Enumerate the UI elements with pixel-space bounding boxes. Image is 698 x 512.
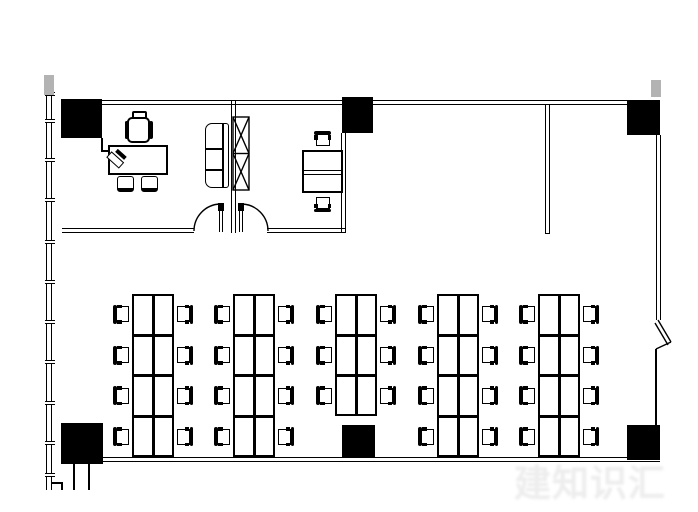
workstation-cluster-3-row-divider-2 — [337, 374, 375, 377]
workstation-cluster-5-chair-right-2-part — [596, 346, 600, 365]
workstation-cluster-2-chair-left-3-part — [218, 402, 223, 406]
workstation-cluster-1-chair-right-4-part — [185, 427, 190, 431]
workstation-cluster-4-chair-right-4-part — [495, 427, 499, 446]
workstation-cluster-4-chair-right-4 — [481, 427, 498, 446]
curtain-mullion-tick-11 — [45, 473, 55, 477]
workstation-cluster-1-chair-left-4 — [113, 427, 130, 446]
workstation-cluster-5-chair-right-4 — [582, 427, 599, 446]
workstation-cluster-1-chair-left-1-part — [117, 320, 122, 324]
office2-south-wall — [267, 228, 345, 233]
workstation-cluster-2-chair-left-1 — [214, 305, 231, 324]
right-wall-notch-3 — [656, 342, 671, 349]
workstation-cluster-1-chair-left-3 — [113, 386, 130, 405]
workstation-cluster-4-chair-right-3-part — [495, 386, 499, 405]
workstation-cluster-5-chair-right-1-part — [591, 320, 596, 324]
workstation-cluster-4-chair-left-2-part — [422, 346, 427, 350]
wall-stub-left-a — [73, 464, 75, 490]
workstation-cluster-4-chair-right-1 — [481, 305, 498, 324]
workstation-cluster-1-chair-right-4 — [176, 427, 193, 446]
workstation-cluster-5-row-divider-3 — [540, 415, 578, 418]
workstation-cluster-3-chair-right-2-part — [388, 346, 393, 350]
workstation-cluster-5-chair-left-2-part — [523, 361, 528, 365]
curtain-mullion-tick-4 — [45, 198, 55, 202]
workstation-cluster-5-chair-left-1-part — [523, 320, 528, 324]
workstation-cluster-5-chair-left-1-part — [523, 305, 528, 309]
workstation-cluster-2-chair-right-1-part — [286, 305, 291, 309]
workstation-cluster-4-row-divider-3 — [439, 415, 477, 418]
workstation-cluster-4-chair-left-4-part — [422, 427, 427, 431]
screen-partition-wall — [545, 105, 550, 234]
door-swing-arc-office2 — [242, 204, 268, 231]
workstation-cluster-4-chair-right-3-part — [490, 386, 495, 390]
curtain-mullion-tick-6 — [45, 280, 55, 284]
guest-chair-1 — [117, 176, 134, 192]
workstation-cluster-4-chair-right-4-part — [490, 427, 495, 431]
workstation-cluster-1-chair-right-1-part — [190, 305, 194, 324]
workstation-cluster-1-chair-right-1-part — [185, 305, 190, 309]
workstation-cluster-2-chair-right-1-part — [286, 320, 291, 324]
workstation-cluster-1-chair-right-2 — [176, 346, 193, 365]
workstation-cluster-1-row-divider-1 — [134, 334, 172, 337]
workstation-cluster-4-chair-right-1-part — [490, 320, 495, 324]
curtain-mullion-tick-9 — [45, 401, 55, 405]
workstation-cluster-2-chair-right-4-part — [291, 427, 295, 446]
workstation-cluster-2-chair-right-2-part — [286, 346, 291, 350]
workstation-cluster-2-chair-right-3 — [277, 386, 294, 405]
workstation-cluster-1-chair-right-3-part — [185, 386, 190, 390]
workstation-cluster-2-chair-left-1-part — [218, 305, 223, 309]
workstation-cluster-5-chair-left-3-part — [523, 386, 528, 390]
workstation-cluster-5-chair-right-3-part — [591, 386, 596, 390]
workstation-cluster-5-chair-left-2-part — [523, 346, 528, 350]
workstation-cluster-3-chair-right-2 — [379, 346, 396, 365]
workstation-cluster-5-chair-left-4-part — [523, 427, 528, 431]
workstation-cluster-2-chair-right-2-part — [291, 346, 295, 365]
workstation-cluster-3-chair-right-1 — [379, 305, 396, 324]
workstation-cluster-1-row-divider-3 — [134, 415, 172, 418]
office1-sofa-back-line — [222, 124, 224, 187]
workstation-cluster-5-chair-right-4-part — [591, 427, 596, 431]
workstation-cluster-2-chair-left-3-part — [218, 386, 223, 390]
workstation-cluster-5-chair-right-2 — [582, 346, 599, 365]
executive-chair-body — [127, 117, 150, 143]
workstation-cluster-2-chair-right-4 — [277, 427, 294, 446]
workstation-cluster-5-chair-right-3-part — [591, 402, 596, 406]
workstation-cluster-2-row-divider-3 — [235, 415, 273, 418]
workstation-cluster-2-chair-right-1-part — [291, 305, 295, 324]
workstation-cluster-4-chair-left-2-part — [422, 361, 427, 365]
door-swing-arc-office1 — [194, 204, 220, 231]
workstation-cluster-4-chair-right-3 — [481, 386, 498, 405]
workstation-cluster-2-chair-left-3 — [214, 386, 231, 405]
workstation-cluster-4-chair-right-2-part — [490, 361, 495, 365]
exterior-wall-right-upper — [656, 135, 661, 320]
curtain-mullion-tick-5 — [45, 240, 55, 244]
workstation-cluster-1-chair-left-1 — [113, 305, 130, 324]
workstation-cluster-2-chair-right-4-part — [286, 427, 291, 431]
workstation-cluster-3-chair-right-3-part — [393, 386, 397, 405]
workstation-cluster-1 — [132, 294, 174, 457]
office1-sofa-cushion-divider-2 — [206, 169, 222, 171]
workstation-cluster-1-chair-left-2-part — [117, 346, 122, 350]
workstation-cluster-2-chair-right-2 — [277, 346, 294, 365]
workstation-cluster-1-chair-right-2-part — [185, 361, 190, 365]
workstation-cluster-4-chair-left-4-part — [422, 443, 427, 447]
workstation-cluster-4-chair-left-3 — [418, 386, 435, 405]
workstation-cluster-5-chair-left-4 — [519, 427, 536, 446]
workstation-cluster-3-center-divider — [355, 296, 358, 414]
workstation-cluster-2-chair-left-2-part — [218, 361, 223, 365]
workstation-cluster-2-chair-right-2-part — [286, 361, 291, 365]
workstation-cluster-2-chair-left-4-part — [218, 443, 223, 447]
office1-sofa — [205, 123, 229, 188]
workstation-cluster-4-chair-left-1 — [418, 305, 435, 324]
workstation-cluster-3-chair-left-2-part — [320, 346, 325, 350]
workstation-cluster-2-chair-right-3-part — [291, 386, 295, 405]
workstation-cluster-5-chair-right-3-part — [596, 386, 600, 405]
workstation-cluster-1-chair-right-1 — [176, 305, 193, 324]
workstation-cluster-4-chair-right-4-part — [490, 443, 495, 447]
curtain-wall-step-v — [61, 482, 63, 490]
workstation-cluster-2-chair-left-2-part — [218, 346, 223, 350]
workstation-cluster-1-chair-left-2-part — [117, 361, 122, 365]
workstation-cluster-1-chair-right-4-part — [185, 443, 190, 447]
workstation-cluster-1-chair-right-3 — [176, 386, 193, 405]
workstation-cluster-4-row-divider-2 — [439, 374, 477, 377]
workstation-cluster-5-chair-left-3 — [519, 386, 536, 405]
workstation-cluster-3-chair-right-1-part — [388, 320, 393, 324]
workstation-cluster-1-chair-right-4-part — [190, 427, 194, 446]
column-top-right — [627, 101, 660, 135]
workstation-cluster-1-chair-right-1-part — [185, 320, 190, 324]
workstation-cluster-3-chair-right-3-part — [388, 402, 393, 406]
workstation-cluster-4-row-divider-1 — [439, 334, 477, 337]
workstation-cluster-3-chair-right-3 — [379, 386, 396, 405]
mullion-cap-top-right — [651, 80, 661, 97]
workstation-cluster-5-chair-right-1 — [582, 305, 599, 324]
workstation-cluster-4-chair-right-1-part — [490, 305, 495, 309]
workstation-cluster-5-chair-right-1-part — [596, 305, 600, 324]
workstation-cluster-2-row-divider-2 — [235, 374, 273, 377]
workstation-cluster-2-chair-left-2 — [214, 346, 231, 365]
workstation-cluster-3-chair-left-1 — [316, 305, 333, 324]
office2-desk — [302, 150, 343, 193]
workstation-cluster-5-chair-right-3 — [582, 386, 599, 405]
workstation-cluster-4-chair-left-2 — [418, 346, 435, 365]
workstation-cluster-4-chair-left-1-part — [422, 305, 427, 309]
workstation-cluster-3-chair-left-2 — [316, 346, 333, 365]
curtain-mullion-tick-10 — [45, 441, 55, 445]
workstation-cluster-3-chair-right-2-part — [388, 361, 393, 365]
workstation-cluster-2 — [233, 294, 275, 457]
workstation-cluster-1-chair-left-4-part — [117, 443, 122, 447]
workstation-cluster-4-chair-right-1-part — [495, 305, 499, 324]
column-bottom-right — [627, 425, 660, 460]
workstation-cluster-5-chair-left-3-part — [523, 402, 528, 406]
workstation-cluster-1-chair-left-4-part — [117, 427, 122, 431]
workstation-cluster-1-chair-left-2 — [113, 346, 130, 365]
workstation-cluster-3-chair-left-3-part — [320, 386, 325, 390]
curtain-mullion-tick-8 — [45, 360, 55, 364]
workstation-cluster-5-chair-right-4-part — [591, 443, 596, 447]
workstation-cluster-3-row-divider-1 — [337, 334, 375, 337]
workstation-cluster-4-chair-right-2-part — [495, 346, 499, 365]
guest-chair-2 — [141, 176, 158, 192]
exterior-wall-right-lower — [655, 349, 657, 425]
workstation-cluster-4-chair-left-4 — [418, 427, 435, 446]
office2-desk-chair-1-part — [314, 135, 318, 140]
workstation-cluster-5-chair-right-2-part — [591, 346, 596, 350]
workstation-cluster-3-chair-right-3-part — [388, 386, 393, 390]
workstation-cluster-1-chair-right-3-part — [190, 386, 194, 405]
column-top-middle — [342, 97, 373, 133]
office2-desk-chair-2 — [314, 196, 331, 212]
workstation-cluster-3-chair-right-2-part — [393, 346, 397, 365]
column-bottom-left — [61, 423, 103, 464]
workstation-cluster-3-chair-right-1-part — [388, 305, 393, 309]
office2-desk-chair-2-part — [314, 204, 318, 209]
floor-plan: 建知识汇 — [0, 0, 698, 512]
workstation-cluster-2-chair-right-1 — [277, 305, 294, 324]
workstation-cluster-2-chair-left-1-part — [218, 320, 223, 324]
workstation-cluster-2-chair-left-4 — [214, 427, 231, 446]
office2-desk-band — [302, 170, 343, 175]
workstation-cluster-5-chair-left-2 — [519, 346, 536, 365]
workstation-cluster-5-chair-right-1-part — [591, 305, 596, 309]
column-bottom-middle — [342, 425, 375, 458]
workstation-cluster-5-row-divider-2 — [540, 374, 578, 377]
curtain-mullion-tick-3 — [45, 158, 55, 162]
executive-chair-arm-left — [125, 121, 129, 139]
workstation-cluster-4-chair-left-1-part — [422, 320, 427, 324]
workstation-cluster-4 — [437, 294, 479, 457]
column-top-left — [61, 99, 102, 138]
workstation-cluster-2-chair-right-4-part — [286, 443, 291, 447]
workstation-cluster-5 — [538, 294, 580, 457]
curtain-mullion-tick-2 — [45, 119, 55, 123]
workstation-cluster-3 — [335, 294, 377, 416]
workstation-cluster-1-chair-right-3-part — [185, 402, 190, 406]
door-office1-leaf — [219, 210, 223, 232]
office-partition-wall — [231, 100, 236, 233]
office2-desk-chair-2-part — [314, 209, 331, 213]
curtain-mullion-tick-7 — [45, 320, 55, 324]
workstation-cluster-2-row-divider-1 — [235, 334, 273, 337]
workstation-cluster-1-chair-right-2-part — [185, 346, 190, 350]
workstation-cluster-1-chair-left-3-part — [117, 402, 122, 406]
workstation-cluster-1-row-divider-2 — [134, 374, 172, 377]
mullion-cap-top-left — [44, 75, 54, 95]
workstation-cluster-5-chair-right-4-part — [596, 427, 600, 446]
workstation-cluster-1-chair-left-1-part — [117, 305, 122, 309]
workstation-cluster-1-chair-left-3-part — [117, 386, 122, 390]
workstation-cluster-4-chair-right-2-part — [490, 346, 495, 350]
workstation-cluster-5-row-divider-1 — [540, 334, 578, 337]
office1-south-wall — [62, 228, 194, 233]
office2-desk-chair-2-part — [328, 204, 332, 209]
workstation-cluster-2-chair-left-4-part — [218, 427, 223, 431]
workstation-cluster-4-chair-left-3-part — [422, 386, 427, 390]
workstation-cluster-4-chair-left-3-part — [422, 402, 427, 406]
workstation-cluster-3-chair-left-3-part — [320, 402, 325, 406]
office1-sofa-cushion-divider-1 — [206, 148, 222, 150]
workstation-cluster-3-chair-left-2-part — [320, 361, 325, 365]
workstation-cluster-3-chair-left-1-part — [320, 305, 325, 309]
door-office2-leaf — [239, 210, 243, 232]
wall-stub-left-b — [88, 464, 90, 490]
workstation-cluster-1-chair-right-2-part — [190, 346, 194, 365]
office2-desk-chair-1-part — [328, 135, 332, 140]
workstation-cluster-5-chair-left-1 — [519, 305, 536, 324]
executive-chair-arm-right — [149, 121, 153, 139]
workstation-cluster-3-chair-left-3 — [316, 386, 333, 405]
workstation-cluster-2-chair-right-3-part — [286, 386, 291, 390]
workstation-cluster-5-chair-left-4-part — [523, 443, 528, 447]
workstation-cluster-5-chair-right-2-part — [591, 361, 596, 365]
office2-desk-chair-1 — [314, 131, 331, 147]
workstation-cluster-3-chair-right-1-part — [393, 305, 397, 324]
workstation-cluster-2-chair-right-3-part — [286, 402, 291, 406]
workstation-cluster-3-chair-left-1-part — [320, 320, 325, 324]
workstation-cluster-4-chair-right-3-part — [490, 402, 495, 406]
workstation-cluster-4-chair-right-2 — [481, 346, 498, 365]
